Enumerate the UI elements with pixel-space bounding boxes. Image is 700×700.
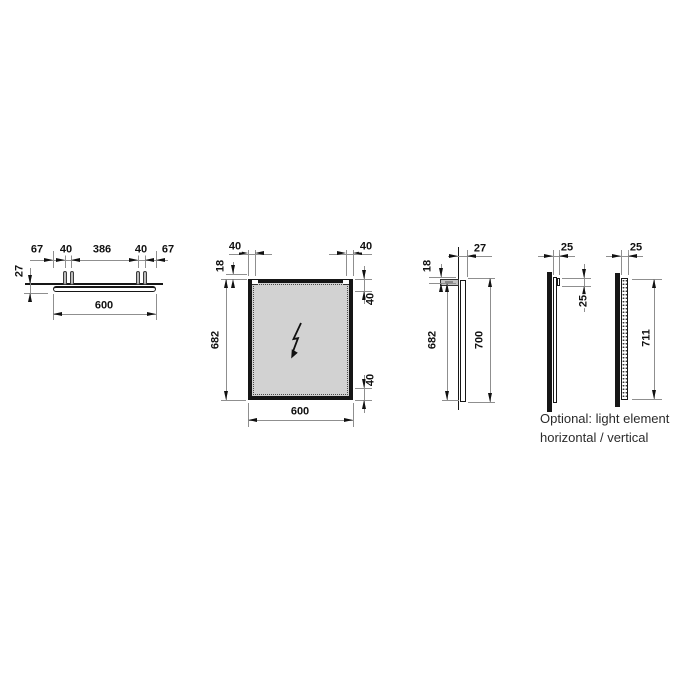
light-element-horizontal bbox=[557, 278, 561, 286]
dim-label-711: 711 bbox=[642, 328, 653, 348]
dim-line bbox=[654, 279, 655, 399]
dim-label-600: 600 bbox=[94, 301, 114, 312]
arrowhead bbox=[129, 258, 138, 262]
dim-label-40-right-top: 40 bbox=[366, 292, 377, 306]
arrowhead bbox=[255, 251, 264, 255]
caption-line-2: horizontal / vertical bbox=[540, 428, 700, 447]
arrowhead bbox=[652, 390, 656, 399]
arrowhead bbox=[231, 279, 235, 288]
arrowhead bbox=[362, 270, 366, 279]
mounting-notch bbox=[343, 280, 349, 285]
ext-line bbox=[429, 277, 456, 278]
arrowhead bbox=[156, 258, 165, 262]
dim-line bbox=[226, 279, 227, 400]
mounting-pin bbox=[63, 271, 67, 285]
dim-label-18: 18 bbox=[216, 259, 227, 273]
arrowhead bbox=[56, 258, 65, 262]
dim-label-67-left: 67 bbox=[30, 245, 44, 256]
ext-line bbox=[632, 279, 662, 280]
dim-label-25-light-height: 25 bbox=[579, 294, 590, 308]
ext-line bbox=[429, 283, 456, 284]
lightning-bolt-icon bbox=[288, 322, 306, 366]
arrowhead bbox=[449, 254, 458, 258]
arrowhead bbox=[44, 258, 53, 262]
dim-label-25-depth-h: 25 bbox=[560, 243, 574, 254]
ext-line bbox=[562, 286, 591, 287]
arrowhead bbox=[53, 312, 62, 316]
ext-line bbox=[353, 403, 354, 427]
ext-line bbox=[468, 402, 495, 403]
dim-line bbox=[248, 420, 353, 421]
ext-line bbox=[621, 250, 622, 275]
dim-label-40-right: 40 bbox=[134, 245, 148, 256]
arrowhead bbox=[582, 269, 586, 278]
arrowhead bbox=[28, 275, 32, 284]
caption: Optional: light element horizontal / ver… bbox=[540, 409, 700, 447]
dim-line bbox=[53, 314, 156, 315]
ext-line bbox=[156, 294, 157, 320]
dim-label-25-depth-v: 25 bbox=[629, 243, 643, 254]
ext-line bbox=[442, 400, 459, 401]
dim-line bbox=[329, 254, 372, 255]
dim-label-40-top-left: 40 bbox=[228, 242, 242, 253]
mirror-glass-line bbox=[553, 277, 558, 403]
arrowhead bbox=[544, 254, 553, 258]
light-element-vertical bbox=[621, 278, 629, 400]
dim-label-40-right-bottom: 40 bbox=[366, 373, 377, 387]
arrowhead bbox=[145, 258, 154, 262]
arrowhead bbox=[231, 265, 235, 274]
dim-label-18: 18 bbox=[423, 259, 434, 273]
mirror-side-profile bbox=[460, 280, 467, 402]
arrowhead bbox=[344, 418, 353, 422]
dim-line bbox=[447, 283, 448, 400]
mirror-plan-profile bbox=[53, 286, 156, 293]
arrowhead bbox=[71, 258, 80, 262]
dim-line bbox=[490, 278, 491, 402]
ext-line bbox=[221, 400, 246, 401]
technical-drawing-canvas: 67 40 386 40 67 27 600 bbox=[0, 0, 700, 700]
dim-label-27: 27 bbox=[473, 244, 487, 255]
arrowhead bbox=[488, 393, 492, 402]
mounting-pin bbox=[70, 271, 74, 285]
dim-label-682: 682 bbox=[211, 330, 222, 350]
dim-label-386: 386 bbox=[92, 245, 112, 256]
dim-label-40-left: 40 bbox=[59, 245, 73, 256]
caption-line-1: Optional: light element bbox=[540, 409, 700, 428]
arrowhead bbox=[439, 268, 443, 277]
mirror-side-profile bbox=[547, 272, 552, 412]
ext-line bbox=[248, 403, 249, 427]
ext-line bbox=[562, 278, 591, 279]
dim-label-27: 27 bbox=[15, 264, 26, 278]
arrowhead bbox=[612, 254, 621, 258]
arrowhead bbox=[445, 283, 449, 292]
arrowhead bbox=[248, 418, 257, 422]
dim-label-600: 600 bbox=[290, 407, 310, 418]
mounting-pin bbox=[143, 271, 147, 285]
arrowhead bbox=[224, 391, 228, 400]
mirror-side-profile bbox=[615, 273, 620, 407]
arrowhead bbox=[28, 293, 32, 302]
ext-line bbox=[53, 294, 54, 320]
arrowhead bbox=[147, 312, 156, 316]
arrowhead bbox=[445, 391, 449, 400]
mounting-notch bbox=[252, 280, 258, 285]
dim-label-67-right: 67 bbox=[161, 245, 175, 256]
dim-label-40-top-right: 40 bbox=[359, 242, 373, 253]
arrowhead bbox=[224, 279, 228, 288]
ext-line bbox=[632, 399, 662, 400]
mounting-pin bbox=[136, 271, 140, 285]
dim-label-682: 682 bbox=[428, 330, 439, 350]
arrowhead bbox=[488, 278, 492, 287]
ext-line bbox=[53, 251, 54, 268]
arrowhead bbox=[628, 254, 637, 258]
arrowhead bbox=[559, 254, 568, 258]
arrowhead bbox=[652, 279, 656, 288]
ext-line bbox=[553, 250, 554, 275]
dim-line bbox=[229, 254, 272, 255]
ext-line bbox=[226, 274, 247, 275]
dim-label-700: 700 bbox=[475, 330, 486, 350]
arrowhead bbox=[362, 400, 366, 409]
arrowhead bbox=[439, 283, 443, 292]
arrowhead bbox=[337, 251, 346, 255]
